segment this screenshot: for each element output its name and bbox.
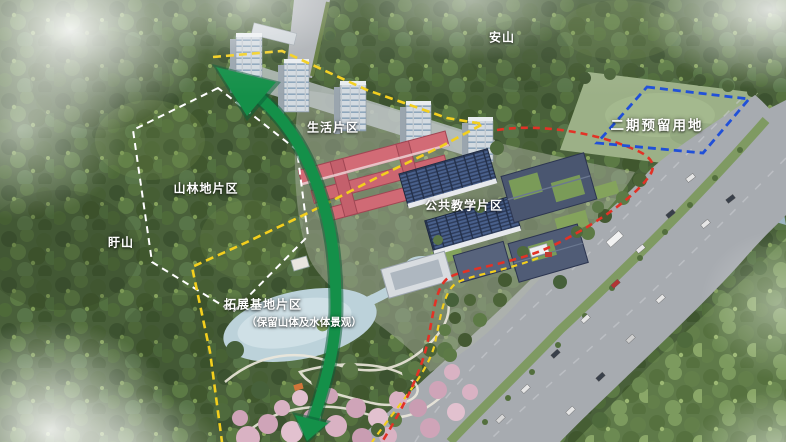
rendering-canvas <box>0 0 786 442</box>
tower <box>334 81 366 134</box>
tower <box>278 59 309 115</box>
aerial-masterplan-rendering: 安山 二期预留用地 生活片区 山林地片区 盱山 公共教学片区 拓展基地片区 （保… <box>0 0 786 442</box>
